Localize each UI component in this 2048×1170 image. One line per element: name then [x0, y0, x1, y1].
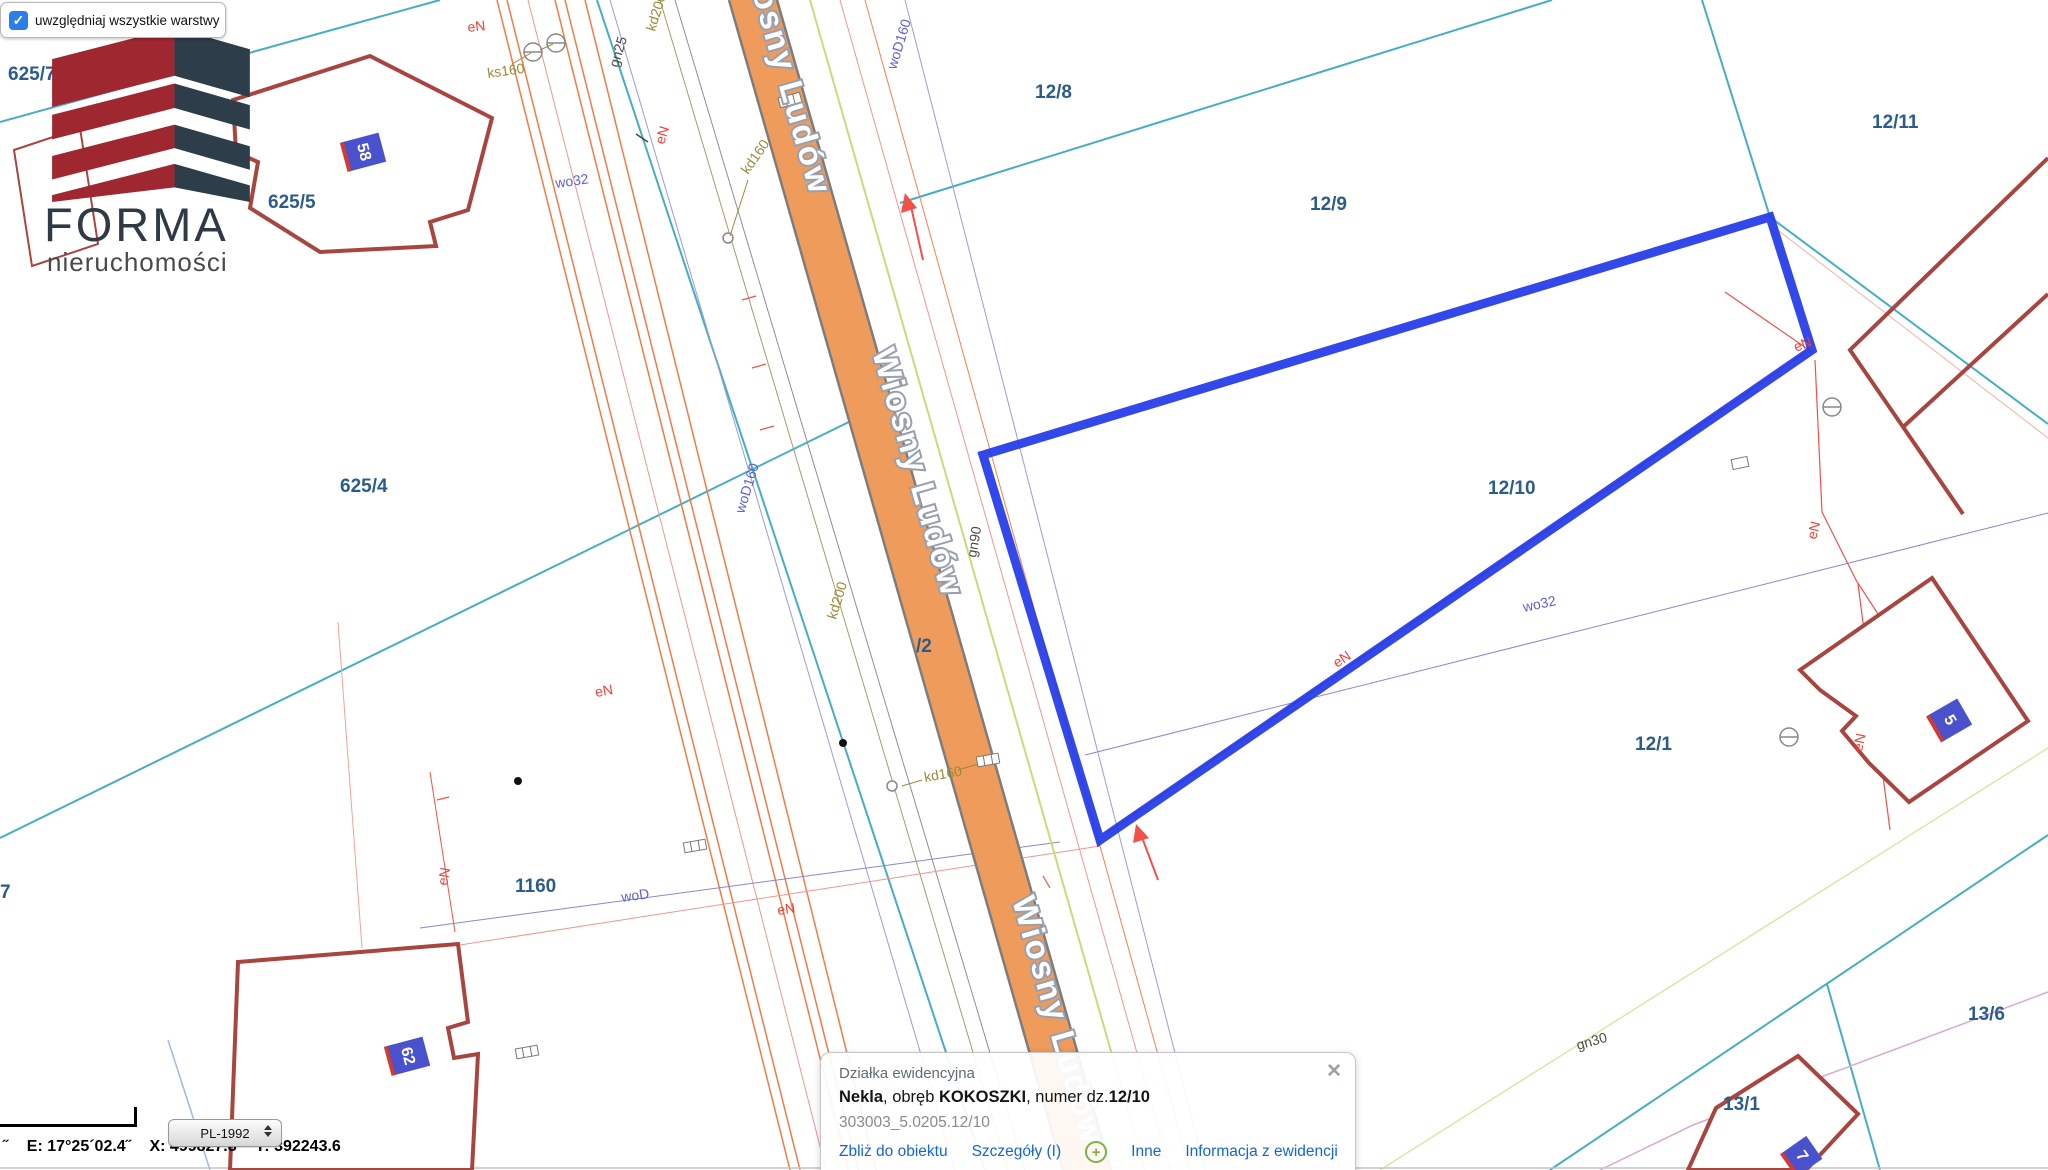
svg-text:eN: eN	[776, 900, 796, 918]
layers-checkbox[interactable]	[9, 11, 28, 30]
svg-text:woD160: woD160	[731, 461, 762, 516]
popup-parcel-id: 303003_5.0205.12/10	[839, 1114, 1339, 1132]
parcel-label: 13/1	[1723, 1094, 1760, 1115]
zoom-to-object-link[interactable]: Zbliż do obiektu	[839, 1143, 948, 1161]
scale-bar	[0, 1124, 137, 1127]
layers-toggle-panel[interactable]: uwzględniaj wszystkie warstwy	[0, 2, 226, 38]
popup-parcel-description: Nekla, obręb KOKOSZKI, numer dz.12/10	[839, 1088, 1339, 1107]
crs-select-value: PL-1992	[200, 1126, 249, 1141]
popup-obreb: KOKOSZKI	[939, 1088, 1026, 1106]
parcel-label: 625/4	[340, 476, 388, 497]
building-number-badges: 58 62 5 7	[342, 133, 1972, 1170]
svg-text:woD: woD	[619, 885, 650, 905]
map-viewer: Wiosny Ludów Wiosny Ludów Wiosny Ludów 6…	[0, 0, 2048, 1170]
parcel-label: 7	[0, 882, 11, 903]
selected-parcel-outline[interactable]	[983, 217, 1812, 840]
svg-text:gn90: gn90	[963, 525, 984, 559]
popup-title: Działka ewidencyjna	[839, 1065, 1339, 1082]
parcel-label: 12/9	[1310, 194, 1347, 215]
select-arrows-icon	[264, 1125, 272, 1137]
details-link[interactable]: Szczegóły (I)	[972, 1143, 1062, 1161]
cadastral-map[interactable]: Wiosny Ludów Wiosny Ludów Wiosny Ludów 6…	[0, 0, 2048, 1170]
registry-info-link[interactable]: Informacja z ewidencji	[1185, 1143, 1337, 1161]
crs-select[interactable]: PL-1992	[168, 1119, 282, 1147]
svg-text:ks160: ks160	[486, 60, 525, 81]
svg-text:gn30: gn30	[1574, 1029, 1609, 1053]
add-circle-icon[interactable]	[1085, 1141, 1107, 1163]
svg-text:woD160: woD160	[883, 17, 914, 72]
building-logo-icon	[40, 16, 260, 202]
popup-sep: , numer dz.	[1026, 1088, 1109, 1106]
coord-tick: ˝	[3, 1138, 8, 1155]
svg-text:wo32: wo32	[1520, 592, 1557, 615]
svg-text:eN: eN	[652, 124, 673, 146]
svg-text:kd200: kd200	[824, 580, 851, 621]
popup-town: Nekla	[839, 1088, 883, 1106]
utility-corridor-east	[810, 0, 1205, 1170]
svg-text:eN: eN	[467, 17, 486, 35]
logo-subtitle: nieruchomości	[47, 248, 280, 277]
svg-text:eN: eN	[1803, 519, 1823, 540]
parcel-label: 12/1	[1635, 734, 1672, 755]
logo-title: FORMA	[44, 201, 280, 248]
svg-text:eN: eN	[434, 866, 453, 886]
parcel-label: /2	[916, 636, 932, 657]
utility-symbols	[512, 34, 1841, 1059]
svg-text:eN: eN	[594, 681, 614, 700]
other-link[interactable]: Inne	[1131, 1143, 1161, 1161]
parcel-label: 1160	[515, 876, 556, 897]
coord-e: E: 17°25´02.4˝	[27, 1138, 131, 1155]
company-logo: FORMA nieruchomości	[40, 16, 280, 277]
parcel-label: 13/6	[1968, 1004, 2005, 1025]
scale-bar-tick	[134, 1107, 137, 1127]
parcel-info-popup: ✕ Działka ewidencyjna Nekla, obręb KOKOS…	[820, 1052, 1356, 1170]
svg-text:wo32: wo32	[553, 170, 590, 191]
parcel-label: 12/10	[1488, 478, 1536, 499]
popup-parcel-number: 12/10	[1109, 1088, 1150, 1106]
parcel-label: 12/8	[1035, 82, 1072, 103]
layers-checkbox-label: uwzględniaj wszystkie warstwy	[35, 13, 220, 28]
svg-text:kd160: kd160	[737, 136, 772, 177]
popup-sep: , obręb	[883, 1088, 939, 1106]
close-icon[interactable]: ✕	[1326, 1062, 1342, 1081]
parcel-label: 12/11	[1872, 112, 1919, 133]
